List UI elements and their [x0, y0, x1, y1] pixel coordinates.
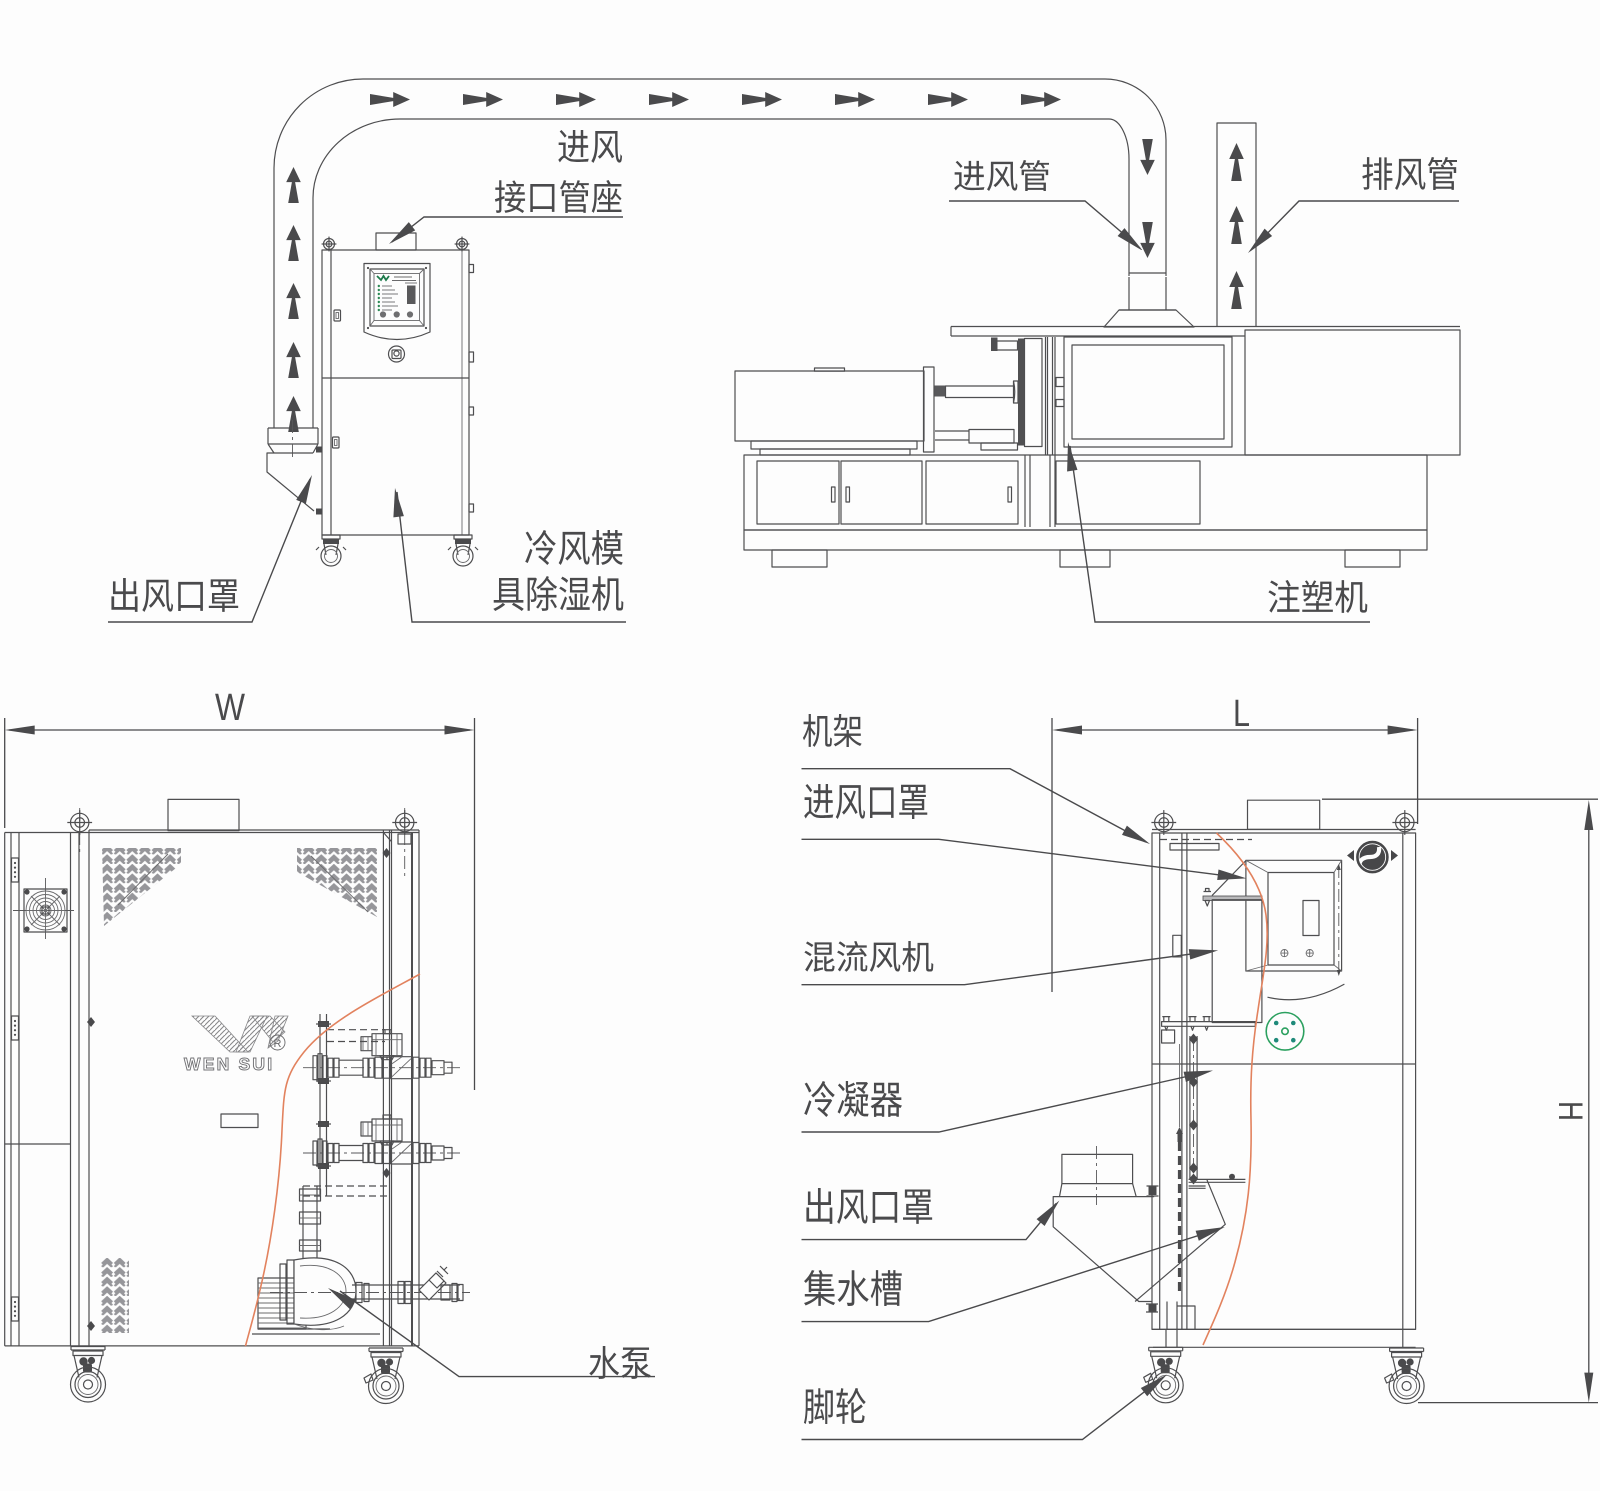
- svg-text:W: W: [215, 687, 245, 729]
- svg-text:H: H: [1551, 1101, 1589, 1121]
- svg-text:L: L: [1233, 693, 1250, 735]
- svg-text:R: R: [274, 1038, 282, 1050]
- svg-text:WEN SUI: WEN SUI: [184, 1054, 274, 1074]
